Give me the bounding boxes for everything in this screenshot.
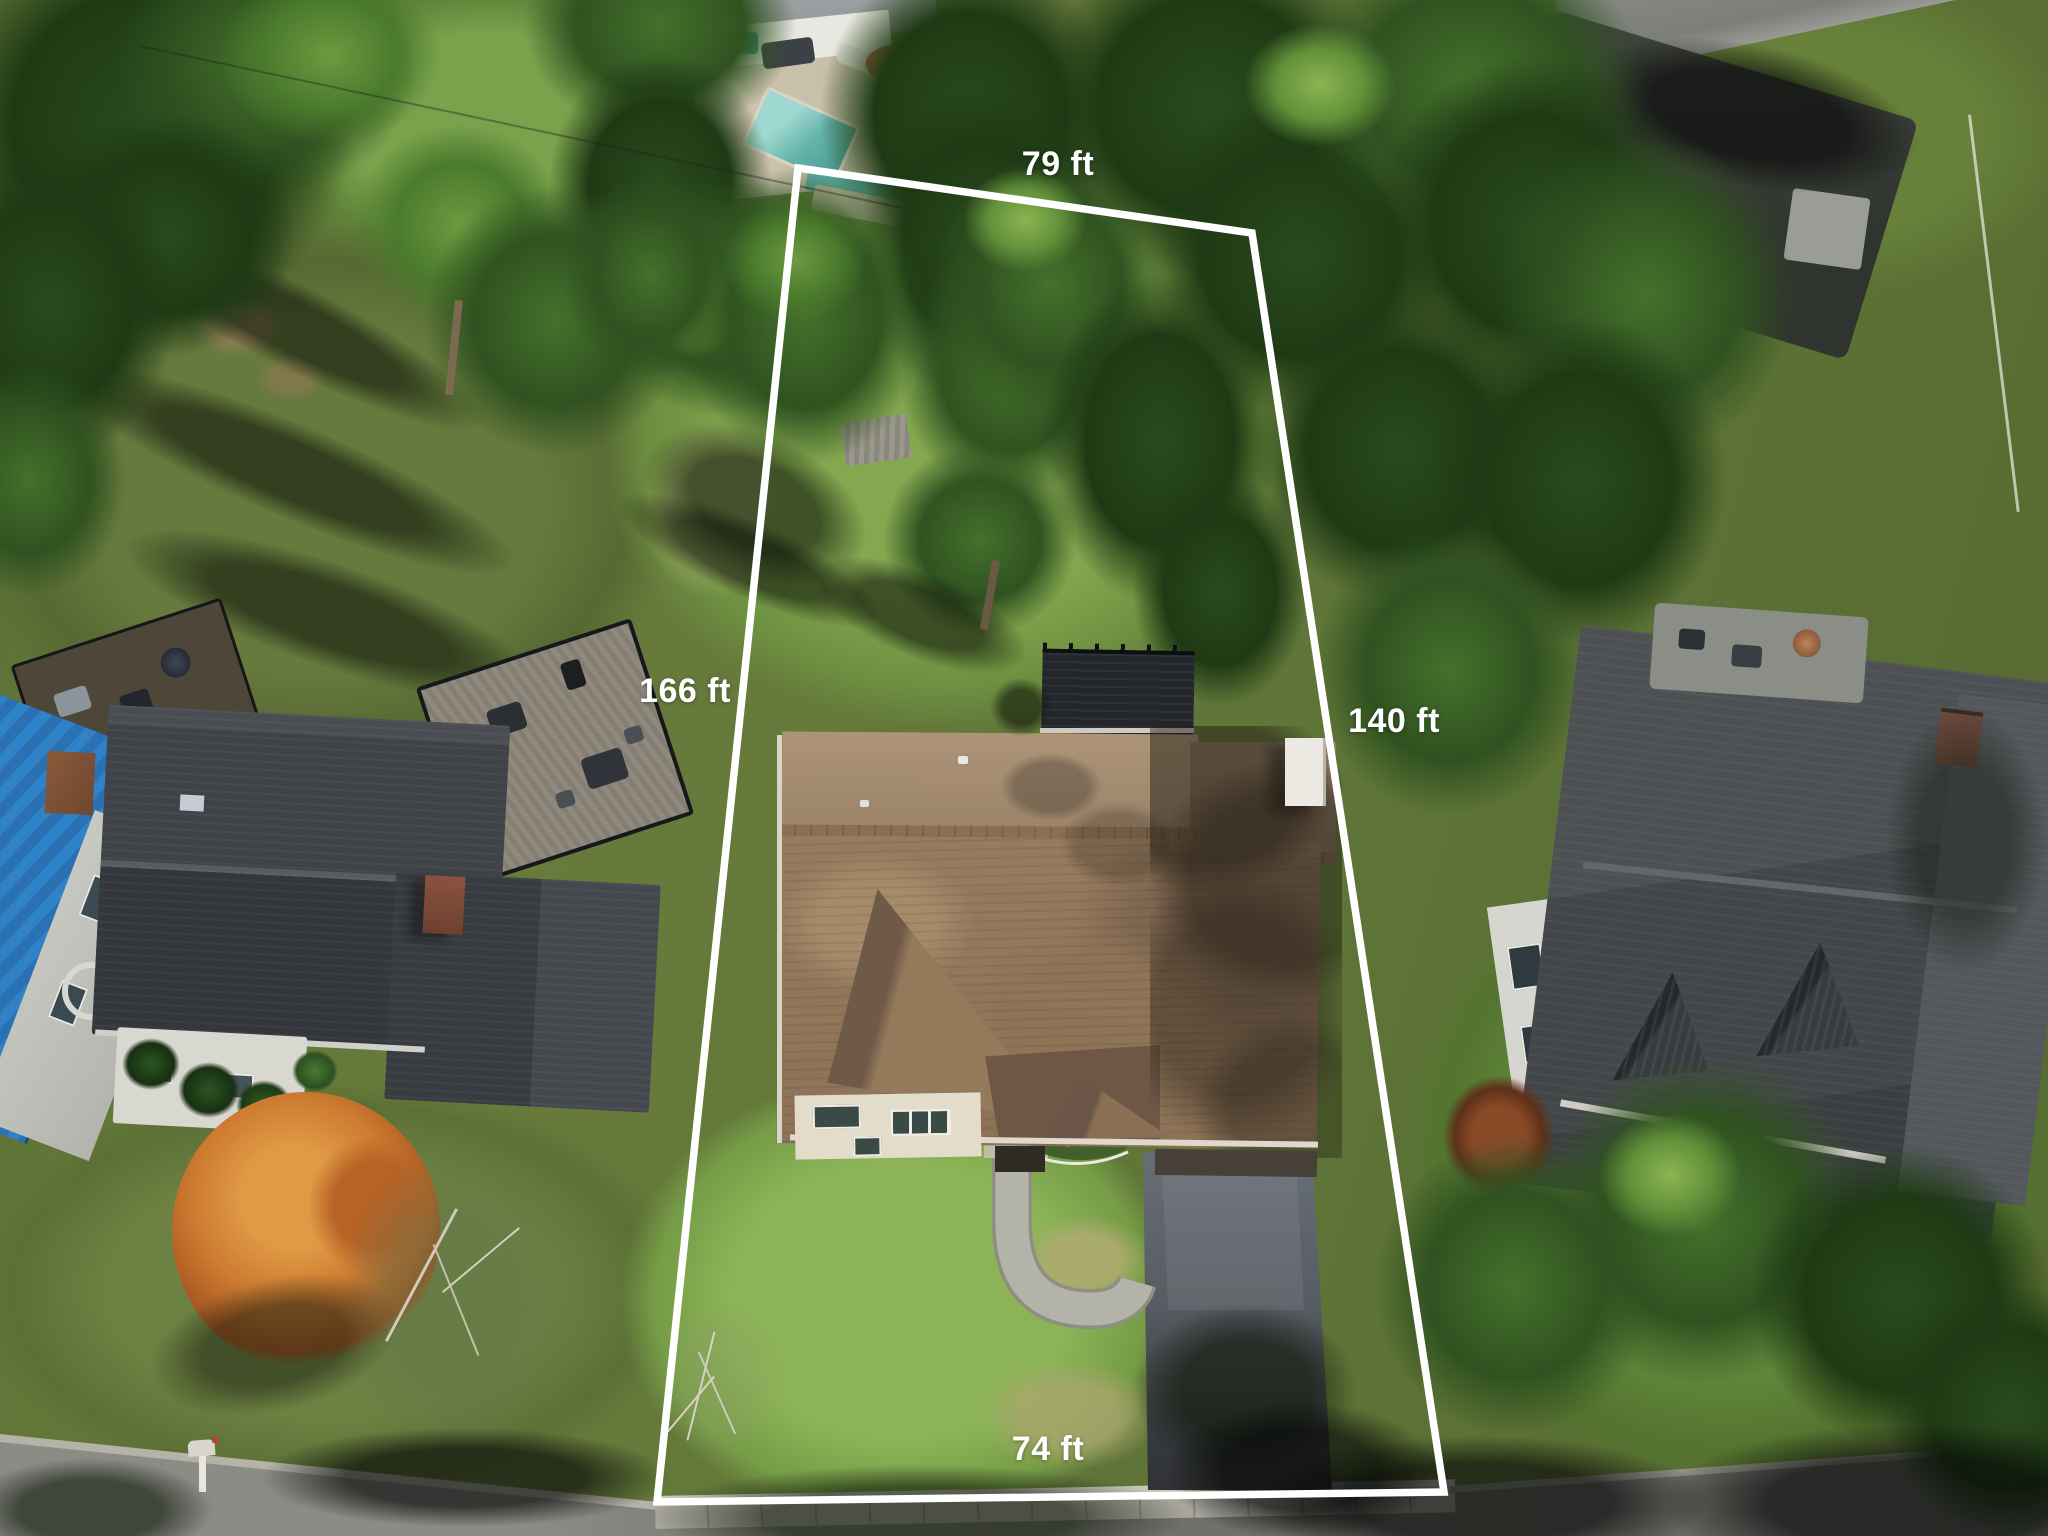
- dimension-label-bottom: 74 ft: [1012, 1432, 1084, 1466]
- dimension-label-top: 79 ft: [1022, 147, 1094, 181]
- dimension-label-right: 140 ft: [1348, 704, 1440, 738]
- lot-boundary: [657, 168, 1444, 1502]
- dimension-label-left: 166 ft: [639, 674, 731, 708]
- lot-boundary-overlay: [0, 0, 2048, 1536]
- aerial-photo: 79 ft 166 ft 140 ft 74 ft: [0, 0, 2048, 1536]
